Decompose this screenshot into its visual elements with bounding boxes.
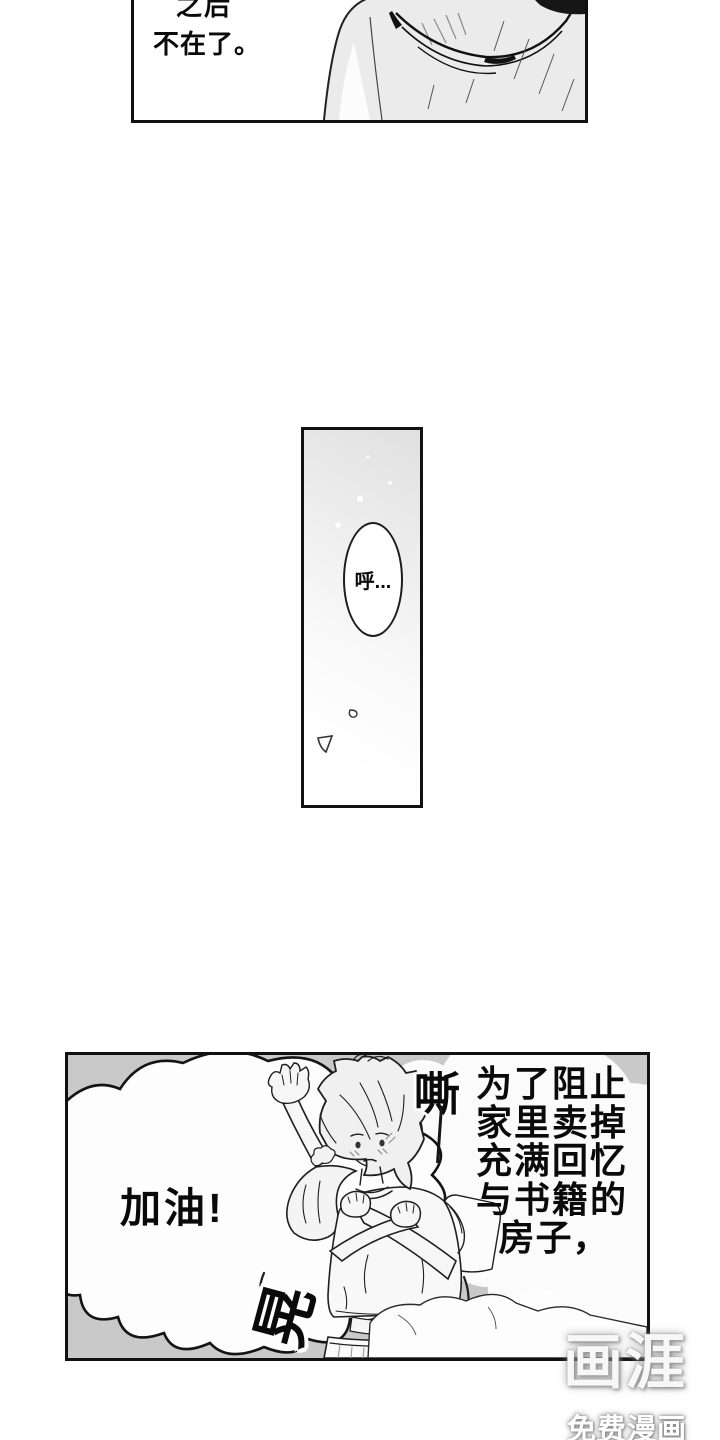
narration-line: 房子，: [476, 1219, 632, 1258]
narration-line: 与书籍的: [476, 1181, 632, 1220]
watermark-caption: 免费漫画: [567, 1406, 687, 1440]
manga-page: 之后 不在了。 呼...: [0, 0, 720, 1440]
panel-top: 之后 不在了。: [131, 0, 588, 123]
sigh-text: 呼...: [355, 565, 392, 594]
shout-text: 加油!: [120, 1174, 225, 1234]
narration-line: 家里卖掉: [476, 1104, 632, 1143]
panel-top-caption-partial: 之后: [176, 0, 232, 23]
panel-top-caption: 不在了。: [153, 24, 261, 61]
watermark-logo: 画涯: [563, 1314, 687, 1401]
sfx-hiss: 嘶: [414, 1058, 460, 1124]
narration-block: 为了阻止 家里卖掉 充满回忆 与书籍的 房子，: [476, 1065, 632, 1258]
narration-line: 为了阻止: [476, 1065, 632, 1104]
narration-line: 充满回忆: [476, 1142, 632, 1181]
panel-middle: 呼...: [301, 427, 423, 808]
watermark: 画涯 免费漫画: [563, 1314, 687, 1440]
speech-bubble-sigh: 呼...: [343, 522, 403, 637]
